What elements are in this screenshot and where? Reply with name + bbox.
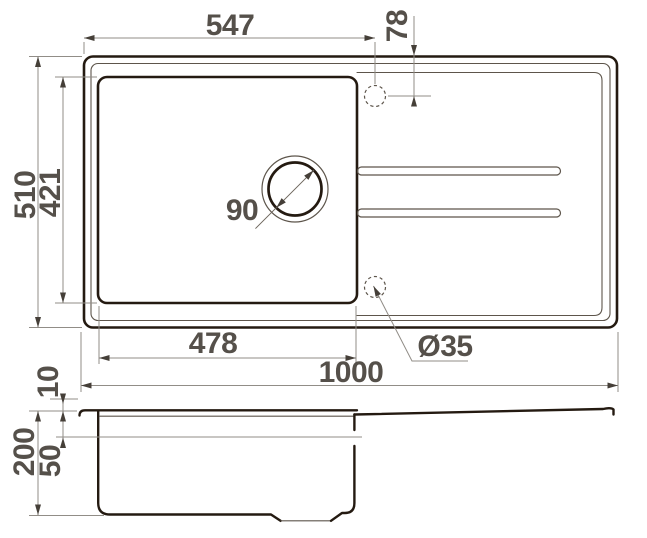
dim-label-478: 478 <box>189 327 238 360</box>
dimension-421: 421 <box>34 77 97 303</box>
arrow <box>608 383 619 389</box>
sink-inner-rim-line <box>91 64 610 321</box>
dim-label-50: 50 <box>34 445 67 477</box>
sink-outer-edge <box>84 57 617 328</box>
bowl-outline <box>98 77 357 303</box>
dimension-478: 478 <box>99 306 356 364</box>
dimension-1000: 1000 <box>81 332 618 392</box>
rim-top-line <box>80 410 358 415</box>
dim-label-1000: 1000 <box>319 356 384 389</box>
drawing-canvas: 547 78 510 421 90 <box>0 0 647 538</box>
arrow <box>81 383 92 389</box>
dimension-hole-diameter: Ø35 <box>371 285 473 363</box>
tap-hole-top <box>365 86 386 107</box>
tap-hole-bottom <box>365 277 386 298</box>
arrow <box>60 77 66 88</box>
arrow <box>35 57 41 68</box>
drainboard-deck-edge <box>357 73 602 316</box>
arrow <box>84 35 95 41</box>
arrow <box>35 317 41 328</box>
dim-label-421: 421 <box>34 169 67 218</box>
dim-label-90: 90 <box>226 194 258 227</box>
dimensions: 547 78 510 421 90 <box>8 9 618 516</box>
dimension-78: 78 <box>381 10 431 107</box>
sink-dimension-drawing: 547 78 510 421 90 <box>0 0 647 538</box>
drainboard-groove-top <box>358 167 561 175</box>
dim-label-78: 78 <box>381 10 414 42</box>
dim-label-547: 547 <box>206 9 255 42</box>
arrow <box>411 96 417 107</box>
arrow <box>411 45 417 56</box>
arrow <box>99 355 110 361</box>
arrow <box>365 35 376 41</box>
top-view <box>84 57 617 328</box>
dimension-547: 547 <box>84 9 375 84</box>
arrow <box>60 411 66 422</box>
arrow <box>371 285 381 297</box>
side-view <box>56 408 614 521</box>
arrow <box>35 411 41 422</box>
dim-label-hole-diameter: Ø35 <box>417 330 472 363</box>
drainboard-groove-bottom <box>358 209 561 217</box>
drainboard-surface-line <box>354 408 613 414</box>
arrow <box>60 293 66 304</box>
bowl-right-wall-lower <box>331 446 354 521</box>
dim-label-10: 10 <box>32 366 65 398</box>
bowl-left-wall-and-bottom <box>98 411 280 521</box>
arrow <box>35 505 41 516</box>
